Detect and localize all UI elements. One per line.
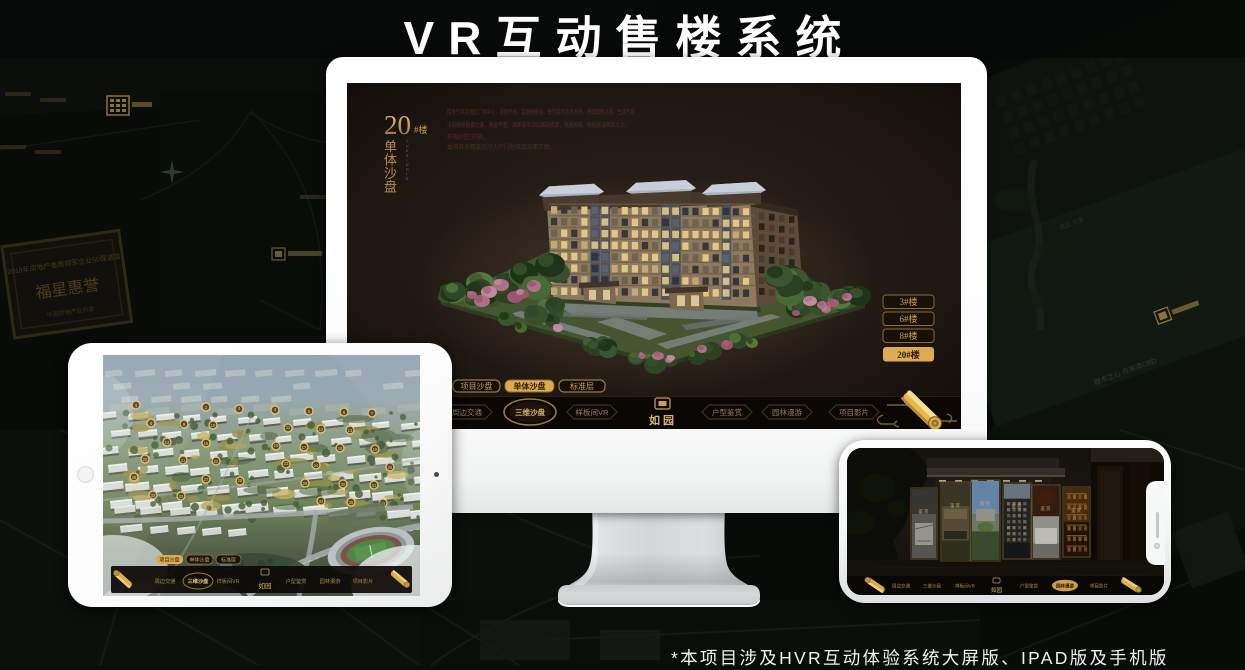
svg-text:园林漫游: 园林漫游: [772, 407, 802, 417]
svg-text:本项目全精装交付人户门为成品效果示意。: 本项目全精装交付人户门为成品效果示意。: [447, 143, 555, 151]
svg-text:样板间VR: 样板间VR: [217, 577, 240, 585]
svg-text:8#楼: 8#楼: [899, 330, 917, 341]
svg-text:三维沙盘: 三维沙盘: [923, 583, 941, 590]
svg-text:样板间VR: 样板间VR: [576, 407, 610, 417]
svg-text:项目沙盘: 项目沙盘: [159, 557, 179, 564]
svg-text:园林漫游: 园林漫游: [1056, 583, 1074, 590]
svg-text:项目影片: 项目影片: [353, 577, 374, 585]
svg-text:T: T: [406, 140, 408, 144]
svg-text:样板间VR: 样板间VR: [955, 583, 976, 590]
svg-text:3#楼: 3#楼: [899, 296, 917, 307]
svg-text:I: I: [406, 158, 407, 162]
svg-text:单体沙盘: 单体沙盘: [514, 381, 546, 391]
svg-text:三维沙盘: 三维沙盘: [188, 577, 210, 585]
svg-text:园林漫游: 园林漫游: [320, 577, 341, 585]
svg-text:#楼: #楼: [414, 124, 428, 135]
svg-text:户型鉴赏: 户型鉴赏: [1020, 583, 1038, 590]
svg-text:户型鉴赏: 户型鉴赏: [712, 407, 742, 417]
svg-text:如园: 如园: [259, 581, 272, 590]
svg-text:单体沙盘: 单体沙盘: [189, 557, 209, 564]
svg-text:标准层: 标准层: [570, 381, 594, 391]
svg-text:三维沙盘: 三维沙盘: [515, 407, 545, 417]
svg-text:6#楼: 6#楼: [899, 313, 917, 324]
svg-text:楼座于项目园区广场中心，视野开阔，望园林景观，享受菜市艺术水: 楼座于项目园区广场中心，视野开阔，望园林景观，享受菜市艺术水景，感受醇熟之美，生…: [447, 108, 635, 116]
svg-text:20: 20: [384, 110, 411, 140]
svg-text:如园: 如园: [649, 413, 677, 427]
svg-text:户型鉴赏: 户型鉴赏: [286, 577, 307, 585]
svg-text:项目沙盘: 项目沙盘: [461, 381, 493, 391]
svg-text:20#楼: 20#楼: [897, 349, 920, 360]
svg-text:周边交通: 周边交通: [892, 583, 910, 590]
svg-text:如园: 如园: [991, 586, 1003, 594]
svg-text:标准层: 标准层: [221, 557, 236, 564]
svg-text:项目影片: 项目影片: [1090, 583, 1108, 590]
svg-text:L: L: [406, 172, 408, 176]
svg-text:G: G: [406, 168, 409, 172]
svg-text:周边交通: 周边交通: [155, 577, 177, 585]
svg-text:项目影片: 项目影片: [839, 407, 869, 417]
svg-text:浓郁醇熟配套之美，高层平墅，演绎城市CBD稀缺资源，限量典藏: 浓郁醇熟配套之美，高层平墅，演绎城市CBD稀缺资源，限量典藏，敬献高端菁英人士。: [447, 121, 629, 129]
svg-text:盘: 盘: [384, 180, 397, 195]
svg-text:周边交通: 周边交通: [452, 407, 482, 417]
svg-text:样板间已开放。: 样板间已开放。: [447, 133, 489, 141]
